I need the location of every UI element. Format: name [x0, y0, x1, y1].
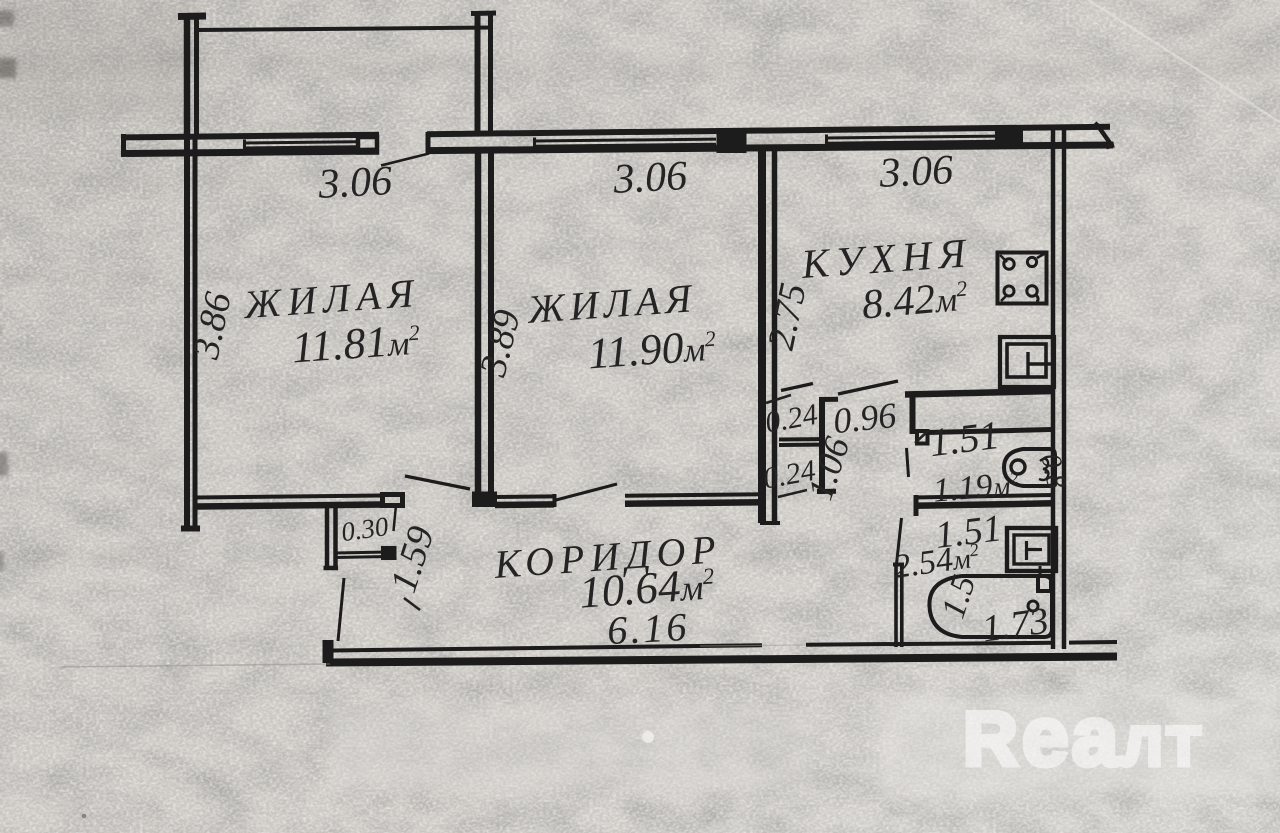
svg-text:3.06: 3.06 — [611, 153, 688, 203]
svg-text:3.06: 3.06 — [316, 158, 393, 208]
svg-text:1.51: 1.51 — [927, 412, 1002, 465]
svg-text:6.16: 6.16 — [606, 604, 690, 653]
svg-text:3.06: 3.06 — [877, 147, 954, 197]
svg-text:0.96: 0.96 — [831, 395, 898, 441]
